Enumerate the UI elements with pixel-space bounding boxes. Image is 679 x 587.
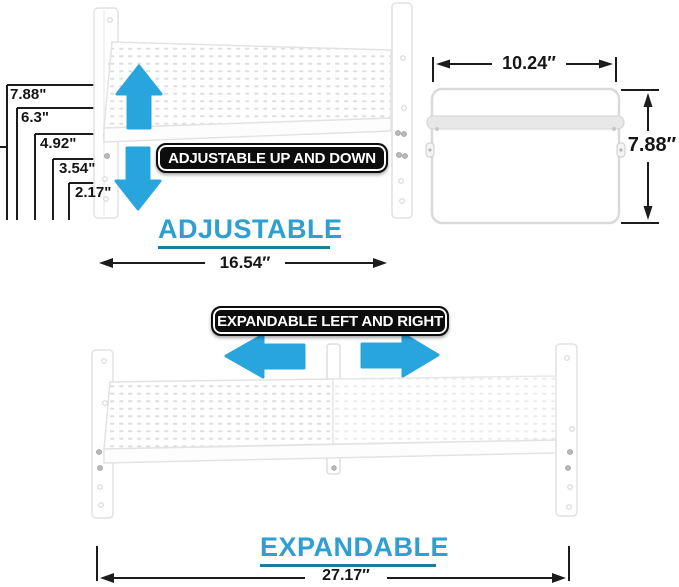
width-label-expandable: 27.17″ xyxy=(305,567,387,585)
width-label-adjustable: 16.54″ xyxy=(205,253,285,273)
height-label-sideview: 7.88″ xyxy=(622,134,679,157)
height-label-2-17: 2.17" xyxy=(75,184,111,201)
height-label-7-88: 7.88" xyxy=(10,86,46,103)
height-label-4-92: 4.92" xyxy=(40,135,76,152)
expandable-title: EXPANDABLE xyxy=(260,532,436,567)
expandable-shelf-drawing xyxy=(92,344,577,518)
side-view-drawing xyxy=(426,89,625,223)
height-label-6-3: 6.3" xyxy=(21,109,49,126)
left-arrow-icon xyxy=(226,335,304,377)
height-label-3-54: 3.54" xyxy=(59,160,95,177)
diagram-artwork xyxy=(0,0,679,587)
adjustable-up-down-badge: ADJUSTABLE UP AND DOWN xyxy=(156,143,388,173)
down-arrow-icon xyxy=(116,148,160,209)
product-diagram: 7.88" 6.3" 4.92" 3.54" 2.17" ADJUSTABLE … xyxy=(0,0,679,587)
right-arrow-icon xyxy=(362,334,438,376)
expandable-left-right-badge: EXPANDABLE LEFT AND RIGHT xyxy=(211,306,449,336)
width-label-sideview: 10.24″ xyxy=(489,53,569,74)
adjustable-title: ADJUSTABLE xyxy=(158,214,330,249)
